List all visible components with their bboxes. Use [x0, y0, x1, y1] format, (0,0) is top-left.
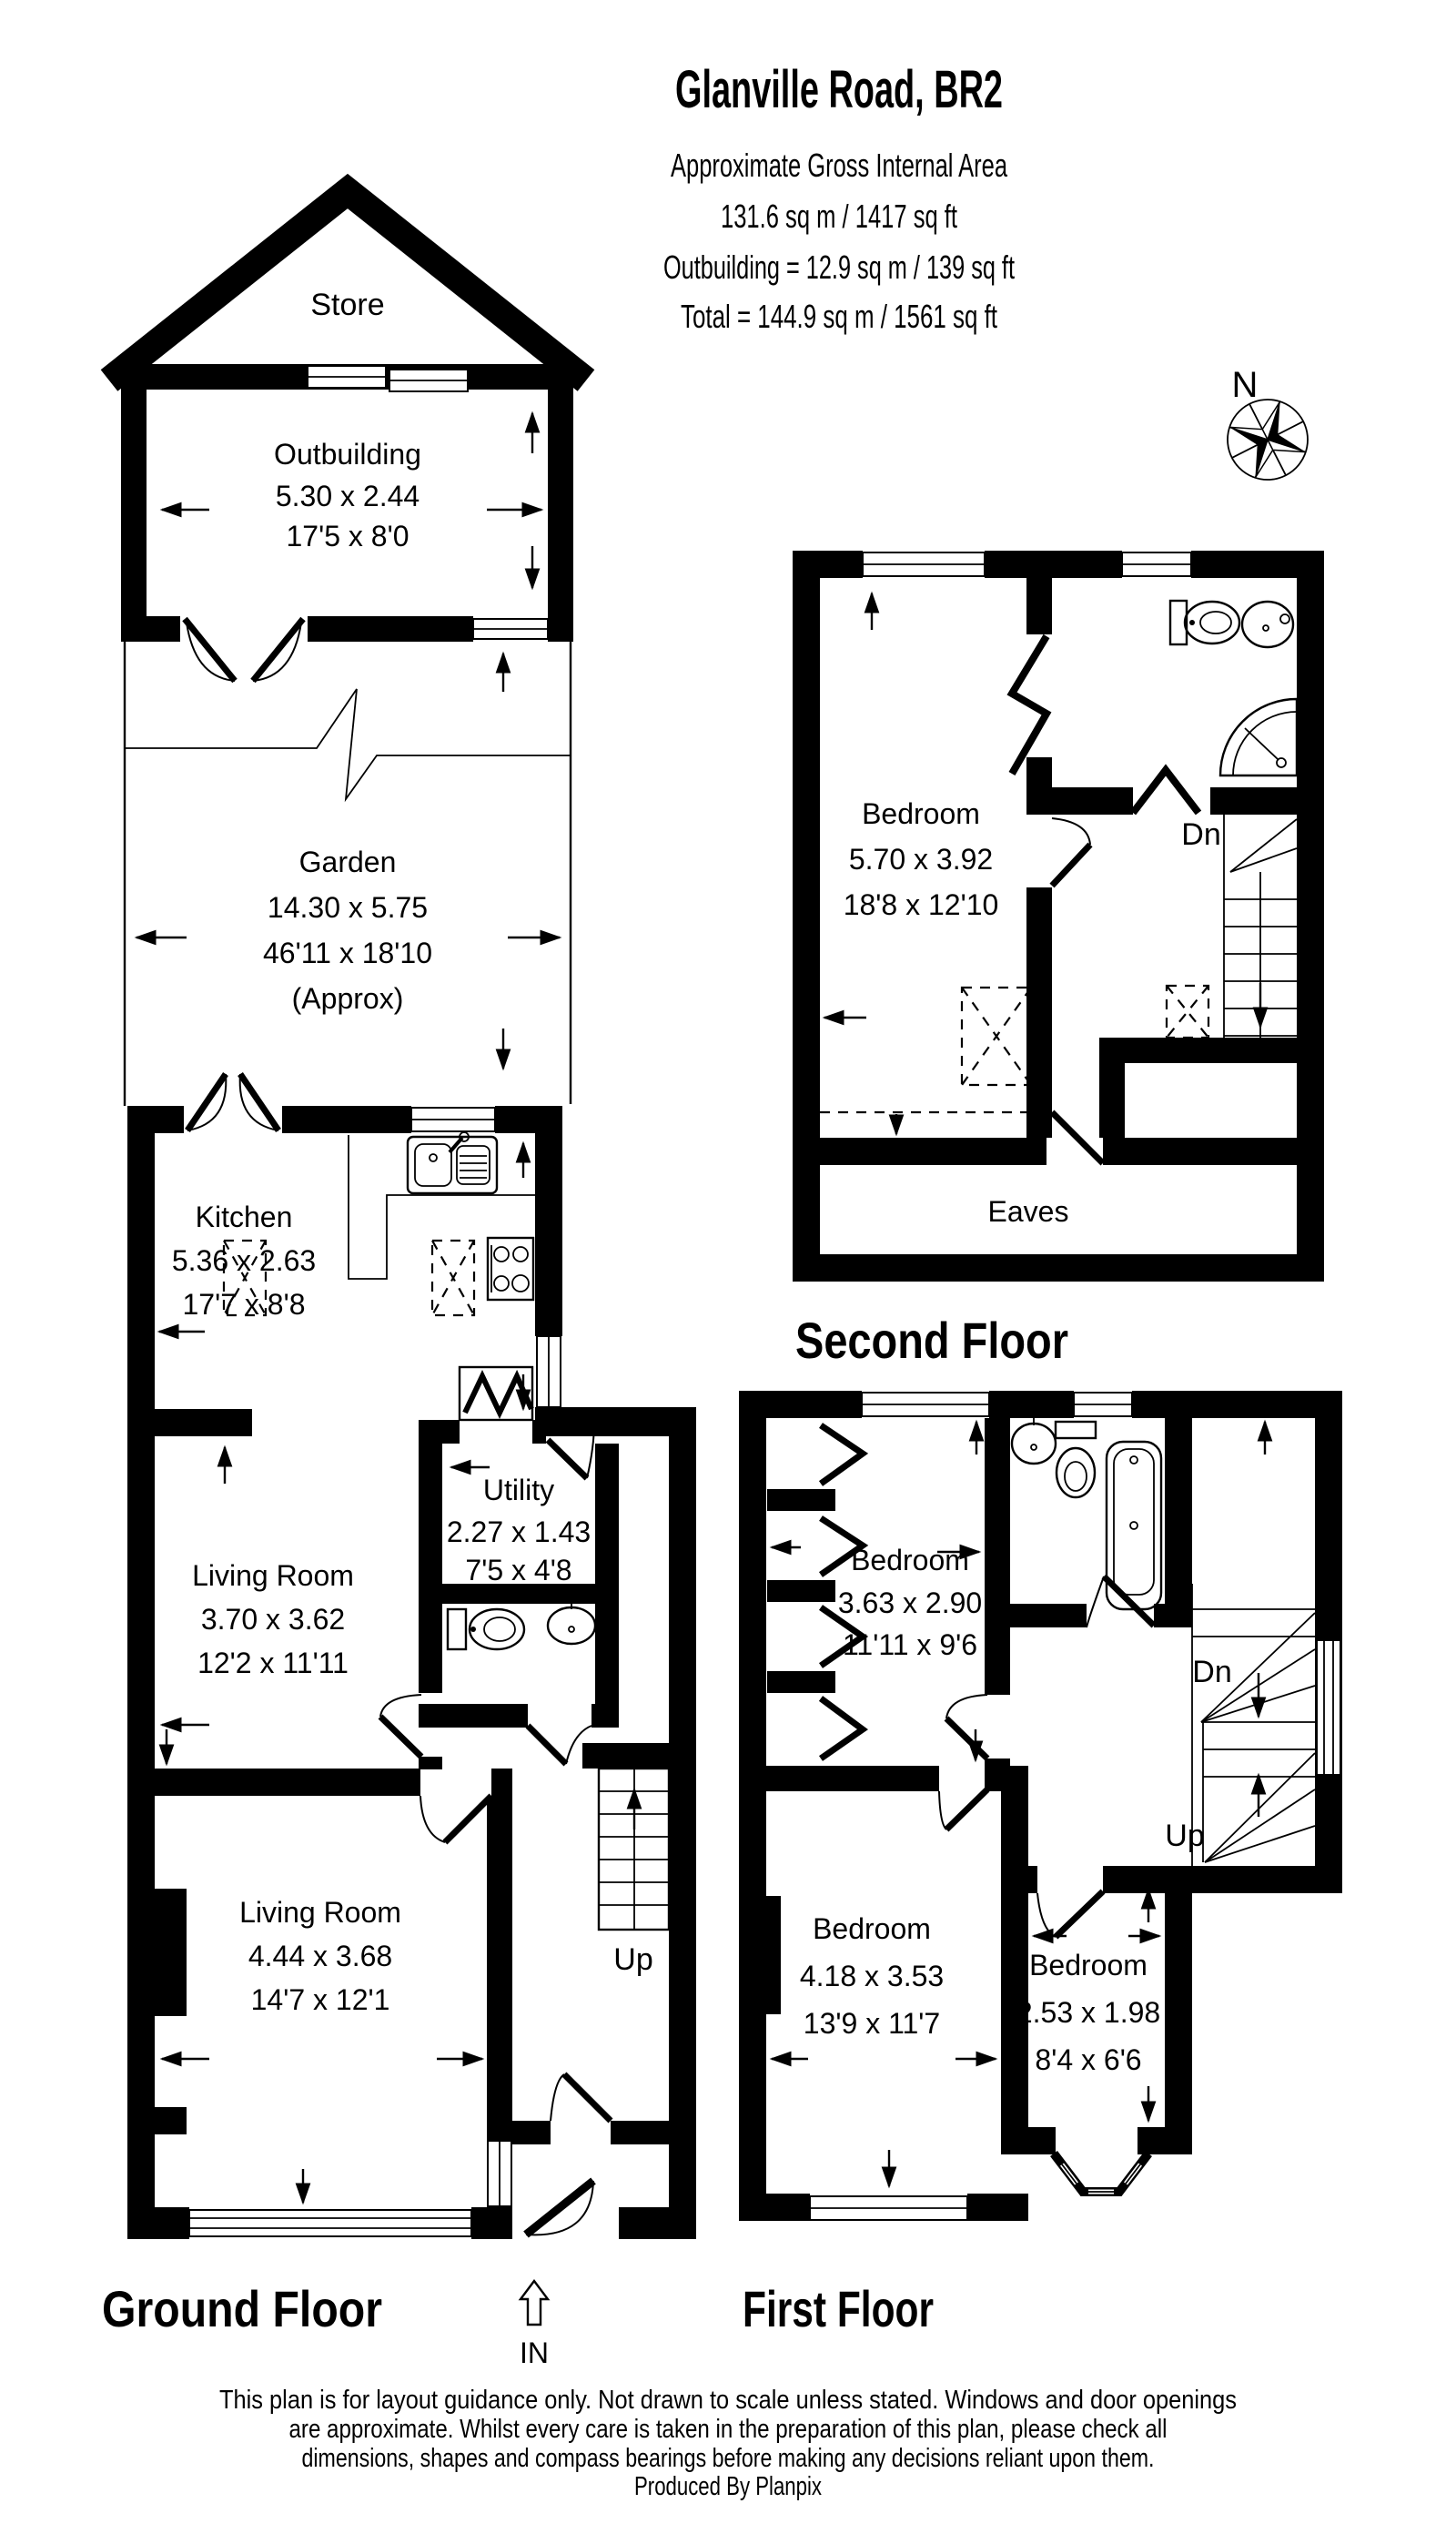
bathtub-icon [1107, 1442, 1161, 1609]
kitchen-name: Kitchen [196, 1201, 293, 1233]
living-room-front-imperial-dims: 14'7 x 12'1 [251, 1983, 390, 2016]
bedroom-front-imperial-dims: 13'9 x 11'7 [804, 2007, 940, 2040]
outbuilding-metric-dims: 5.30 x 2.44 [276, 480, 420, 512]
second-floor-rooflights [962, 986, 1208, 1085]
garden-approx-note: (Approx) [292, 982, 404, 1015]
hall-porch-door [551, 2074, 611, 2121]
kitchen-rooflight-right [432, 1241, 474, 1315]
utility-imperial-dims: 7'5 x 4'8 [465, 1554, 571, 1586]
internal-area-value: 131.6 sq m / 1417 sq ft [721, 198, 957, 235]
bedroom-small-name: Bedroom [1029, 1949, 1148, 1981]
bathroom-double-door [1133, 770, 1198, 813]
living-room-front-metric-dims: 4.44 x 3.68 [248, 1940, 392, 1972]
entrance-marker: IN [520, 2281, 549, 2369]
living-room-rear-door [380, 1695, 421, 1757]
wardrobe-doors-icon [1012, 636, 1046, 774]
disclaimer-line-1: This plan is for layout guidance only. N… [219, 2386, 1237, 2415]
bedroom-small-imperial-dims: 8'4 x 6'6 [1035, 2043, 1141, 2076]
disclaimer-line-2: are approximate. Whilst every care is ta… [289, 2415, 1168, 2444]
second-floor-heading: Second Floor [795, 1312, 1068, 1369]
bedroom-front-name: Bedroom [813, 1912, 931, 1945]
second-bedroom-imperial-dims: 18'8 x 12'10 [844, 888, 999, 921]
shower-icon [1220, 699, 1297, 775]
outbuilding-label: Outbuilding 5.30 x 2.44 17'5 x 8'0 [274, 438, 421, 552]
kitchen-sink-icon [408, 1132, 497, 1193]
ground-floor-stairs [599, 1769, 669, 1930]
second-toilet-icon [1170, 601, 1239, 644]
page-title: Glanville Road, BR2 [675, 60, 1003, 119]
eaves-label: Eaves [988, 1195, 1069, 1228]
second-floor-plan: Bedroom 5.70 x 3.92 18'8 x 12'10 Dn Eave… [793, 551, 1324, 1369]
second-bedroom-metric-dims: 5.70 x 3.92 [849, 843, 993, 876]
total-area-value: Total = 144.9 sq m / 1561 sq ft [681, 298, 997, 335]
produced-by-credit: Produced By Planpix [634, 2472, 822, 2501]
wc-toilet-icon [448, 1609, 524, 1649]
bedroom-small-door [1037, 1891, 1103, 1937]
wc-basin-icon [548, 1602, 595, 1644]
utility-label: Utility 2.27 x 1.43 7'5 x 4'8 [447, 1474, 591, 1586]
garden-name: Garden [299, 846, 397, 878]
bedroom-front-label: Bedroom 4.18 x 3.53 13'9 x 11'7 [800, 1912, 944, 2040]
footer-disclaimer: This plan is for layout guidance only. N… [219, 2386, 1237, 2501]
first-toilet-icon [1056, 1422, 1096, 1497]
header: Glanville Road, BR2 Approximate Gross In… [663, 60, 1015, 335]
bedroom-rear-door [946, 1695, 987, 1759]
first-basin-icon [1012, 1418, 1056, 1464]
kitchen-imperial-dims: 17'7 x 8'8 [183, 1288, 306, 1321]
utility-name: Utility [483, 1474, 554, 1506]
disclaimer-line-3: dimensions, shapes and compass bearings … [302, 2444, 1155, 2473]
stairs-up-label: Up [613, 1942, 652, 1977]
second-floor-eaves-line [820, 1112, 1026, 1134]
bedroom-small-metric-dims: 2.53 x 1.98 [1016, 1996, 1160, 2029]
outbuilding-area-value: Outbuilding = 12.9 sq m / 139 sq ft [663, 248, 1015, 286]
garden-label: Garden 14.30 x 5.75 46'11 x 18'10 (Appro… [263, 846, 432, 1015]
wc-door [528, 1726, 591, 1764]
bedroom-rear-imperial-dims: 11'11 x 9'6 [843, 1628, 977, 1661]
side-door-bay [460, 1367, 532, 1420]
kitchen-metric-dims: 5.36 x 2.63 [172, 1244, 316, 1277]
second-basin-icon [1242, 602, 1293, 647]
compass-north-label: N [1232, 365, 1259, 405]
front-door [526, 2181, 593, 2235]
garden-imperial-dims: 46'11 x 18'10 [263, 937, 432, 969]
bedroom-small-label: Bedroom 2.53 x 1.98 8'4 x 6'6 [1016, 1949, 1160, 2076]
bedroom-front-door [939, 1789, 987, 1829]
garden-break-line [125, 689, 571, 799]
outbuilding-double-door [185, 619, 303, 681]
ground-floor-plan: Store Outbuilding 5.30 x 2.44 17'5 x 8'0… [102, 191, 696, 2369]
living-room-rear-imperial-dims: 12'2 x 11'11 [197, 1647, 349, 1679]
second-floor-stairs [1224, 815, 1297, 1060]
bathroom-door [1087, 1576, 1154, 1627]
bay-window [1054, 2154, 1148, 2192]
outbuilding-name: Outbuilding [274, 438, 421, 471]
floorplan-drawing: Glanville Road, BR2 Approximate Gross In… [0, 0, 1456, 2544]
first-floor-up-label: Up [1165, 1819, 1204, 1853]
store-label: Store [310, 288, 384, 322]
entrance-in-label: IN [520, 2336, 549, 2369]
first-floor-plan: Bedroom 3.63 x 2.90 11'11 x 9'6 Dn Up Be… [739, 1391, 1342, 2337]
bedroom-front-metric-dims: 4.18 x 3.53 [800, 1960, 944, 1992]
living-room-front-door [420, 1796, 491, 1842]
bedroom-rear-name: Bedroom [851, 1544, 969, 1576]
compass-icon: N [1218, 365, 1319, 490]
first-floor-dn-label: Dn [1192, 1655, 1231, 1689]
first-floor-heading: First Floor [743, 2280, 934, 2337]
bedroom-rear-label: Bedroom 3.63 x 2.90 11'11 x 9'6 [838, 1544, 982, 1661]
outbuilding-imperial-dims: 17'5 x 8'0 [287, 520, 409, 552]
second-bedroom-door [1052, 818, 1090, 886]
living-room-rear-label: Living Room 3.70 x 3.62 12'2 x 11'11 [192, 1559, 354, 1679]
garden-french-doors [187, 1074, 278, 1130]
kitchen-label: Kitchen 5.36 x 2.63 17'7 x 8'8 [172, 1201, 316, 1321]
ground-floor-heading: Ground Floor [102, 2280, 382, 2337]
floorplan-page: Glanville Road, BR2 Approximate Gross In… [0, 0, 1456, 2544]
first-floor-walls [739, 1391, 1342, 2221]
living-room-rear-metric-dims: 3.70 x 3.62 [201, 1603, 345, 1636]
second-bedroom-name: Bedroom [862, 797, 980, 830]
utility-metric-dims: 2.27 x 1.43 [447, 1515, 591, 1548]
second-floor-dn-label: Dn [1181, 817, 1220, 852]
gross-internal-area-label: Approximate Gross Internal Area [671, 147, 1008, 184]
living-room-rear-name: Living Room [192, 1559, 354, 1592]
garden-metric-dims: 14.30 x 5.75 [268, 891, 428, 924]
store-roof [109, 191, 586, 380]
bedroom-rear-metric-dims: 3.63 x 2.90 [838, 1586, 982, 1619]
living-room-front-name: Living Room [239, 1896, 401, 1929]
living-room-front-label: Living Room 4.44 x 3.68 14'7 x 12'1 [239, 1896, 401, 2016]
second-bedroom-label: Bedroom 5.70 x 3.92 18'8 x 12'10 [844, 797, 999, 921]
kitchen-hob-icon [488, 1238, 533, 1300]
first-floor-stairs [1192, 1584, 1315, 1866]
entrance-arrow-icon [521, 2281, 548, 2325]
